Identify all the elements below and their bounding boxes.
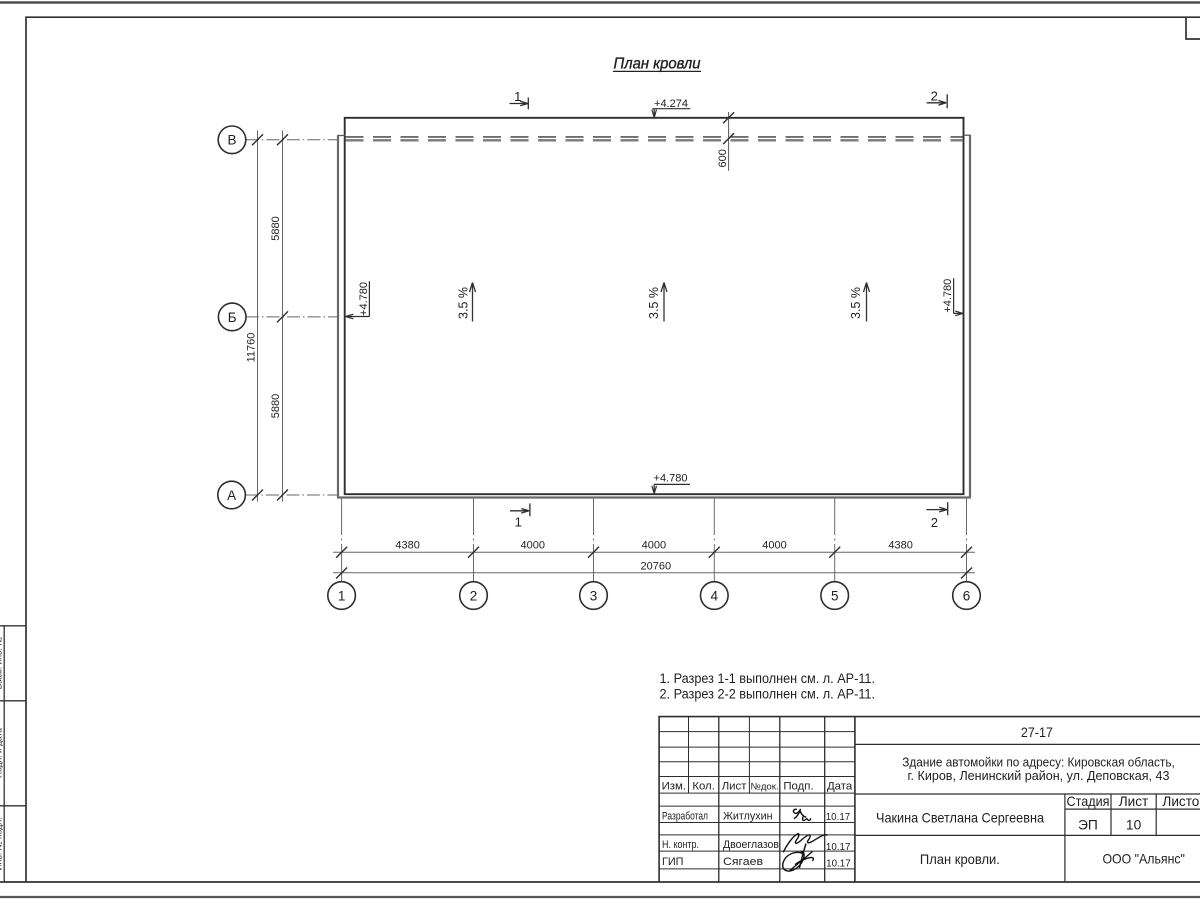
svg-text:Н. контр.: Н. контр. [662,839,699,851]
svg-text:10.17: 10.17 [826,858,851,869]
svg-text:4: 4 [711,588,719,603]
svg-text:Кол.: Кол. [692,781,715,793]
svg-text:3.5 %: 3.5 % [647,287,661,319]
svg-text:600: 600 [717,149,729,167]
svg-text:4000: 4000 [642,540,666,552]
svg-text:Лист: Лист [1119,794,1149,809]
svg-text:4380: 4380 [888,540,912,552]
svg-text:Дата: Дата [827,781,853,793]
svg-text:10.17: 10.17 [826,842,851,853]
svg-text:3.5 %: 3.5 % [456,287,470,319]
svg-text:2: 2 [931,515,938,530]
svg-text:3.5 %: 3.5 % [849,287,863,319]
svg-text:План кровли.: План кровли. [920,852,1000,867]
svg-text:Чакина Светлана Сергеевна: Чакина Светлана Сергеевна [876,811,1044,826]
svg-text:+4.780: +4.780 [358,282,370,316]
svg-text:Двоеглазов: Двоеглазов [723,839,779,851]
svg-text:4000: 4000 [521,540,545,552]
svg-text:5: 5 [831,588,839,603]
svg-text:4380: 4380 [395,540,419,552]
svg-text:3: 3 [590,588,598,603]
svg-text:1. Разрез 1-1 выполнен см. л.: 1. Разрез 1-1 выполнен см. л. АР-11. [660,671,876,686]
svg-text:2: 2 [931,89,938,104]
svg-text:Сягаев: Сягаев [723,856,763,868]
svg-text:В: В [227,133,236,148]
svg-text:А: А [227,488,236,503]
svg-text:Здание автомойки по адресу: Ки: Здание автомойки по адресу: Кировская об… [902,756,1175,770]
svg-text:Стадия: Стадия [1067,794,1110,809]
svg-text:Б: Б [228,310,237,325]
svg-text:ГИП: ГИП [662,856,684,868]
svg-text:5880: 5880 [270,216,282,240]
svg-text:Подп. и дата: Подп. и дата [0,728,3,778]
svg-text:1: 1 [338,588,346,603]
svg-text:1: 1 [515,515,522,530]
svg-text:Взам. инв. №: Взам. инв. № [0,637,3,690]
svg-text:20760: 20760 [641,561,672,573]
svg-text:План кровли: План кровли [614,56,701,73]
svg-text:г. Киров, Ленинский район, ул.: г. Киров, Ленинский район, ул. Деповская… [908,769,1170,783]
svg-text:Листов: Листов [1162,794,1200,809]
svg-text:10: 10 [1126,818,1142,833]
svg-text:№док.: №док. [751,781,779,792]
svg-text:Изм.: Изм. [662,781,686,793]
svg-text:27-17: 27-17 [1021,725,1053,741]
svg-text:4000: 4000 [762,540,786,552]
svg-text:2. Разрез 2-2 выполнен см. л.: 2. Разрез 2-2 выполнен см. л. АР-11. [660,687,876,702]
svg-text:Инв. № подл.: Инв. № подл. [0,818,3,871]
svg-text:5880: 5880 [270,394,282,418]
svg-text:Лист: Лист [722,781,748,793]
svg-text:Подп.: Подп. [783,781,813,793]
svg-text:2: 2 [470,588,478,603]
svg-text:ЭП: ЭП [1078,818,1098,833]
svg-text:10.17: 10.17 [826,812,851,823]
svg-text:11760: 11760 [246,333,258,363]
svg-text:+4.780: +4.780 [654,472,688,484]
svg-text:6: 6 [963,588,971,603]
svg-text:Житлухин: Житлухин [723,811,773,823]
svg-text:+4.780: +4.780 [942,279,954,313]
svg-text:ООО "Альянс": ООО "Альянс" [1102,851,1185,866]
svg-text:Разработал: Разработал [662,811,708,823]
